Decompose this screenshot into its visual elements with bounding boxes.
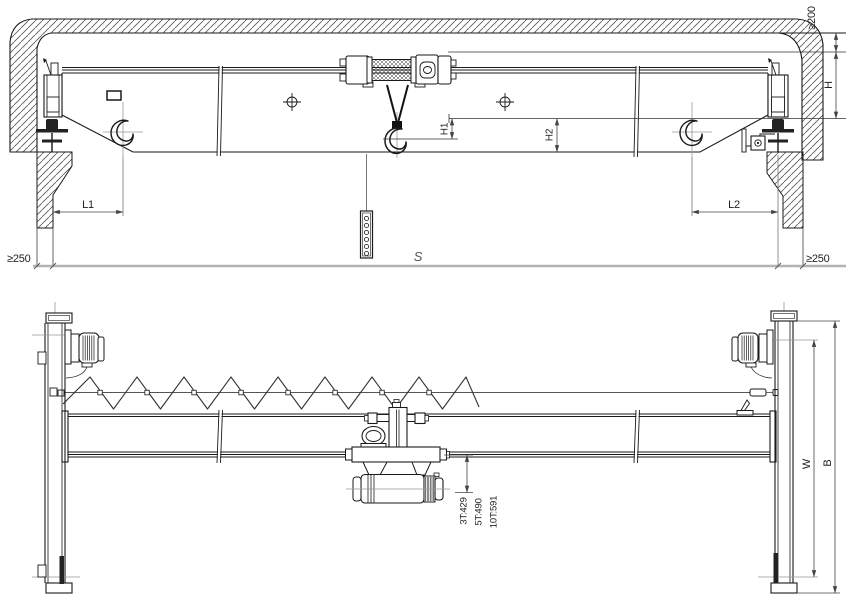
dim-label-wheelbase: W [801, 458, 813, 469]
festoon-cable [50, 377, 778, 415]
rail-right [768, 140, 788, 143]
hook-block-left [103, 102, 143, 157]
plan-view: 3T:429 5T:490 10T:591 W B [32, 302, 840, 593]
dim-label-offset-10t: 10T:591 [489, 496, 500, 528]
rail-left [42, 140, 62, 143]
dim-label-left-clearance: ≥250 [7, 253, 31, 265]
dim-label-offset-5t: 5T:490 [474, 498, 485, 525]
dim-label-offset-3t: 3T:429 [459, 497, 470, 524]
hoist-rope-drum [372, 60, 411, 81]
girder-buffer-block [107, 91, 121, 100]
dim-label-top-clearance: ≥200 [806, 6, 818, 30]
cable-clamp-bracket [737, 400, 753, 415]
lifting-lug-mark-right [496, 93, 514, 111]
dim-label-l1: L1 [82, 199, 94, 211]
right-corbel [767, 152, 803, 228]
wheel-block-left [60, 556, 65, 584]
dim-label-h1: H1 [440, 122, 451, 135]
end-truck-right-elevation [742, 58, 794, 152]
dim-label-right-clearance: ≥250 [806, 253, 830, 265]
end-truck-left-elevation [36, 58, 68, 152]
dim-label-l2: L2 [728, 199, 740, 211]
hoist-trolley-plan [346, 400, 451, 504]
crane-drawing-sheet: ≥200 H H1 H2 L1 L2 ≥250 ≥250 S [0, 0, 848, 605]
pendant-controller [361, 154, 373, 258]
travel-motor-left [65, 330, 104, 378]
travel-motor-right [732, 330, 773, 378]
wire-turnbuckle [750, 389, 766, 396]
dim-label-span: S [414, 249, 423, 264]
hook-block-center [385, 85, 408, 158]
wire-rope-hoist [340, 55, 456, 87]
crane-technical-drawing: ≥200 H H1 H2 L1 L2 ≥250 ≥250 S [0, 0, 848, 605]
dim-label-crane-height: H [823, 81, 835, 89]
lifting-lug-mark-left [283, 93, 301, 111]
left-corbel [37, 152, 72, 228]
hook-sheave-dome [362, 427, 385, 446]
elevation-view: ≥200 H H1 H2 L1 L2 ≥250 ≥250 S [7, 6, 846, 269]
dim-label-h2: H2 [545, 128, 556, 141]
wheel-block-right [774, 553, 779, 583]
dim-label-carriage-length: B [822, 459, 834, 466]
festoon-zigzag-cable [63, 377, 479, 409]
